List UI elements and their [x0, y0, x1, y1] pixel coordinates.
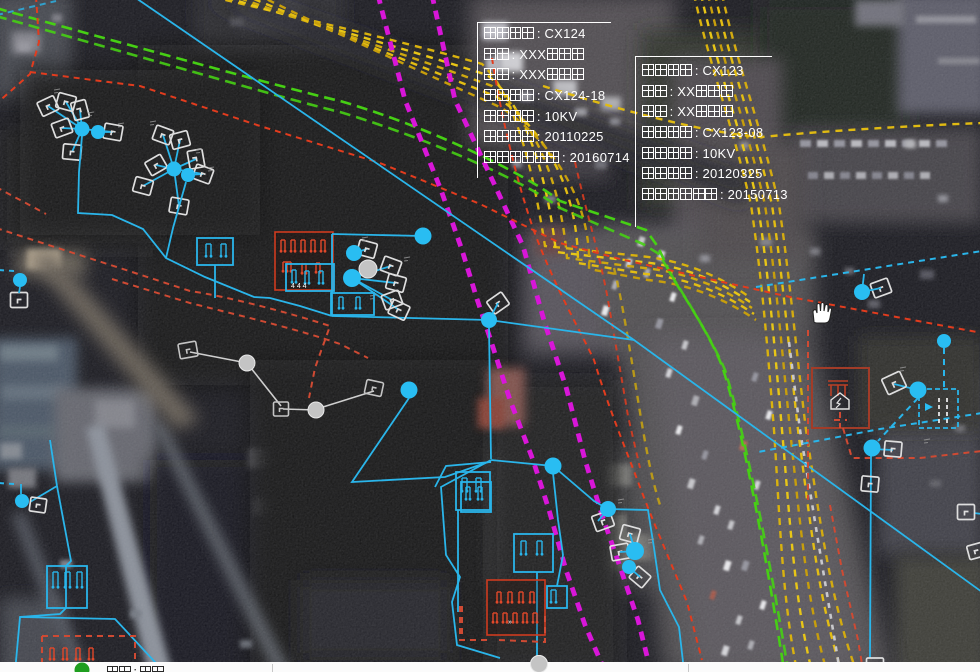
svg-text:»: »	[508, 619, 512, 626]
svg-text:4 4 4: 4 4 4	[291, 283, 307, 290]
